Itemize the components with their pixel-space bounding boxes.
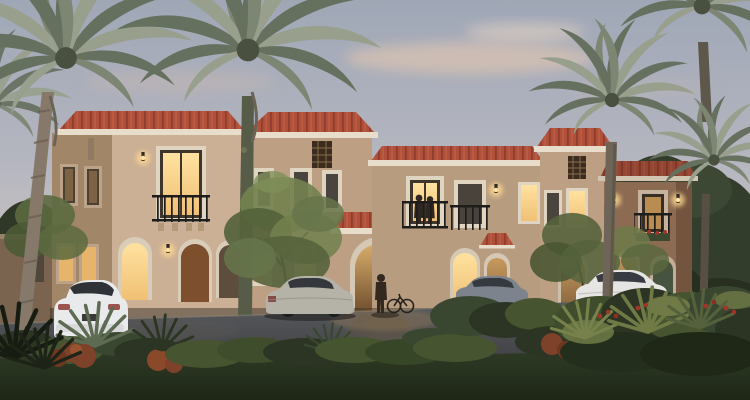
flower xyxy=(655,231,659,235)
lattice-vent xyxy=(568,156,586,179)
flower xyxy=(712,300,716,304)
roof-fascia xyxy=(54,129,248,135)
flower xyxy=(636,306,641,311)
lattice-vent xyxy=(312,141,332,168)
juliet-railing xyxy=(450,206,490,230)
corbel xyxy=(172,223,178,231)
window-lit xyxy=(82,247,96,282)
chimney-slot xyxy=(88,138,94,160)
rendered-photo xyxy=(0,0,750,400)
flower xyxy=(724,306,729,311)
roof-fascia xyxy=(368,160,546,166)
railing-top-bar xyxy=(634,213,672,216)
wall-sconce xyxy=(671,193,685,207)
arched-window-lit xyxy=(122,243,148,300)
small-canopy-fascia xyxy=(479,245,515,249)
corbel xyxy=(186,223,192,231)
wing-roof xyxy=(370,146,544,162)
railing-bottom-bar xyxy=(152,219,210,222)
window-lit xyxy=(521,185,537,221)
flower xyxy=(663,230,667,234)
entry-door-wood xyxy=(181,244,209,302)
window-pane xyxy=(89,171,97,203)
window-pane xyxy=(65,169,73,201)
wall-sconce xyxy=(161,243,175,257)
flower xyxy=(647,230,651,234)
shrub-clump xyxy=(413,334,497,362)
railing-top-bar xyxy=(152,195,210,198)
wall-sconce xyxy=(489,183,503,197)
corbel xyxy=(158,223,164,231)
railing-bottom-bar xyxy=(402,226,448,229)
railing-top-bar xyxy=(402,201,448,204)
vine-leaf xyxy=(241,147,247,153)
tree-canopy xyxy=(36,224,88,260)
person-head xyxy=(377,274,385,282)
balcony-left xyxy=(152,146,210,231)
side-window xyxy=(84,166,102,208)
arcade xyxy=(118,237,244,302)
flower xyxy=(614,314,619,319)
flower xyxy=(598,314,603,319)
roof-fascia xyxy=(242,132,378,138)
flower xyxy=(704,304,709,309)
flower xyxy=(606,310,610,314)
flower xyxy=(644,303,648,307)
scene-canvas xyxy=(0,0,750,400)
juliet-railing xyxy=(152,196,210,222)
tree-canopy xyxy=(254,171,290,193)
juliet-window-dark xyxy=(450,180,490,230)
wing-window-lit xyxy=(518,182,540,224)
car-taillight xyxy=(58,304,70,310)
tree-canopy xyxy=(292,196,344,232)
tree-canopy xyxy=(224,238,276,278)
juliet-railing xyxy=(402,202,448,228)
hip-roof xyxy=(58,111,245,131)
railing-top-bar xyxy=(450,205,490,208)
balcony-center xyxy=(402,176,448,229)
corbel xyxy=(198,223,204,231)
wall-sconce xyxy=(136,151,150,165)
roof-fascia xyxy=(534,146,616,152)
flower xyxy=(732,310,736,314)
